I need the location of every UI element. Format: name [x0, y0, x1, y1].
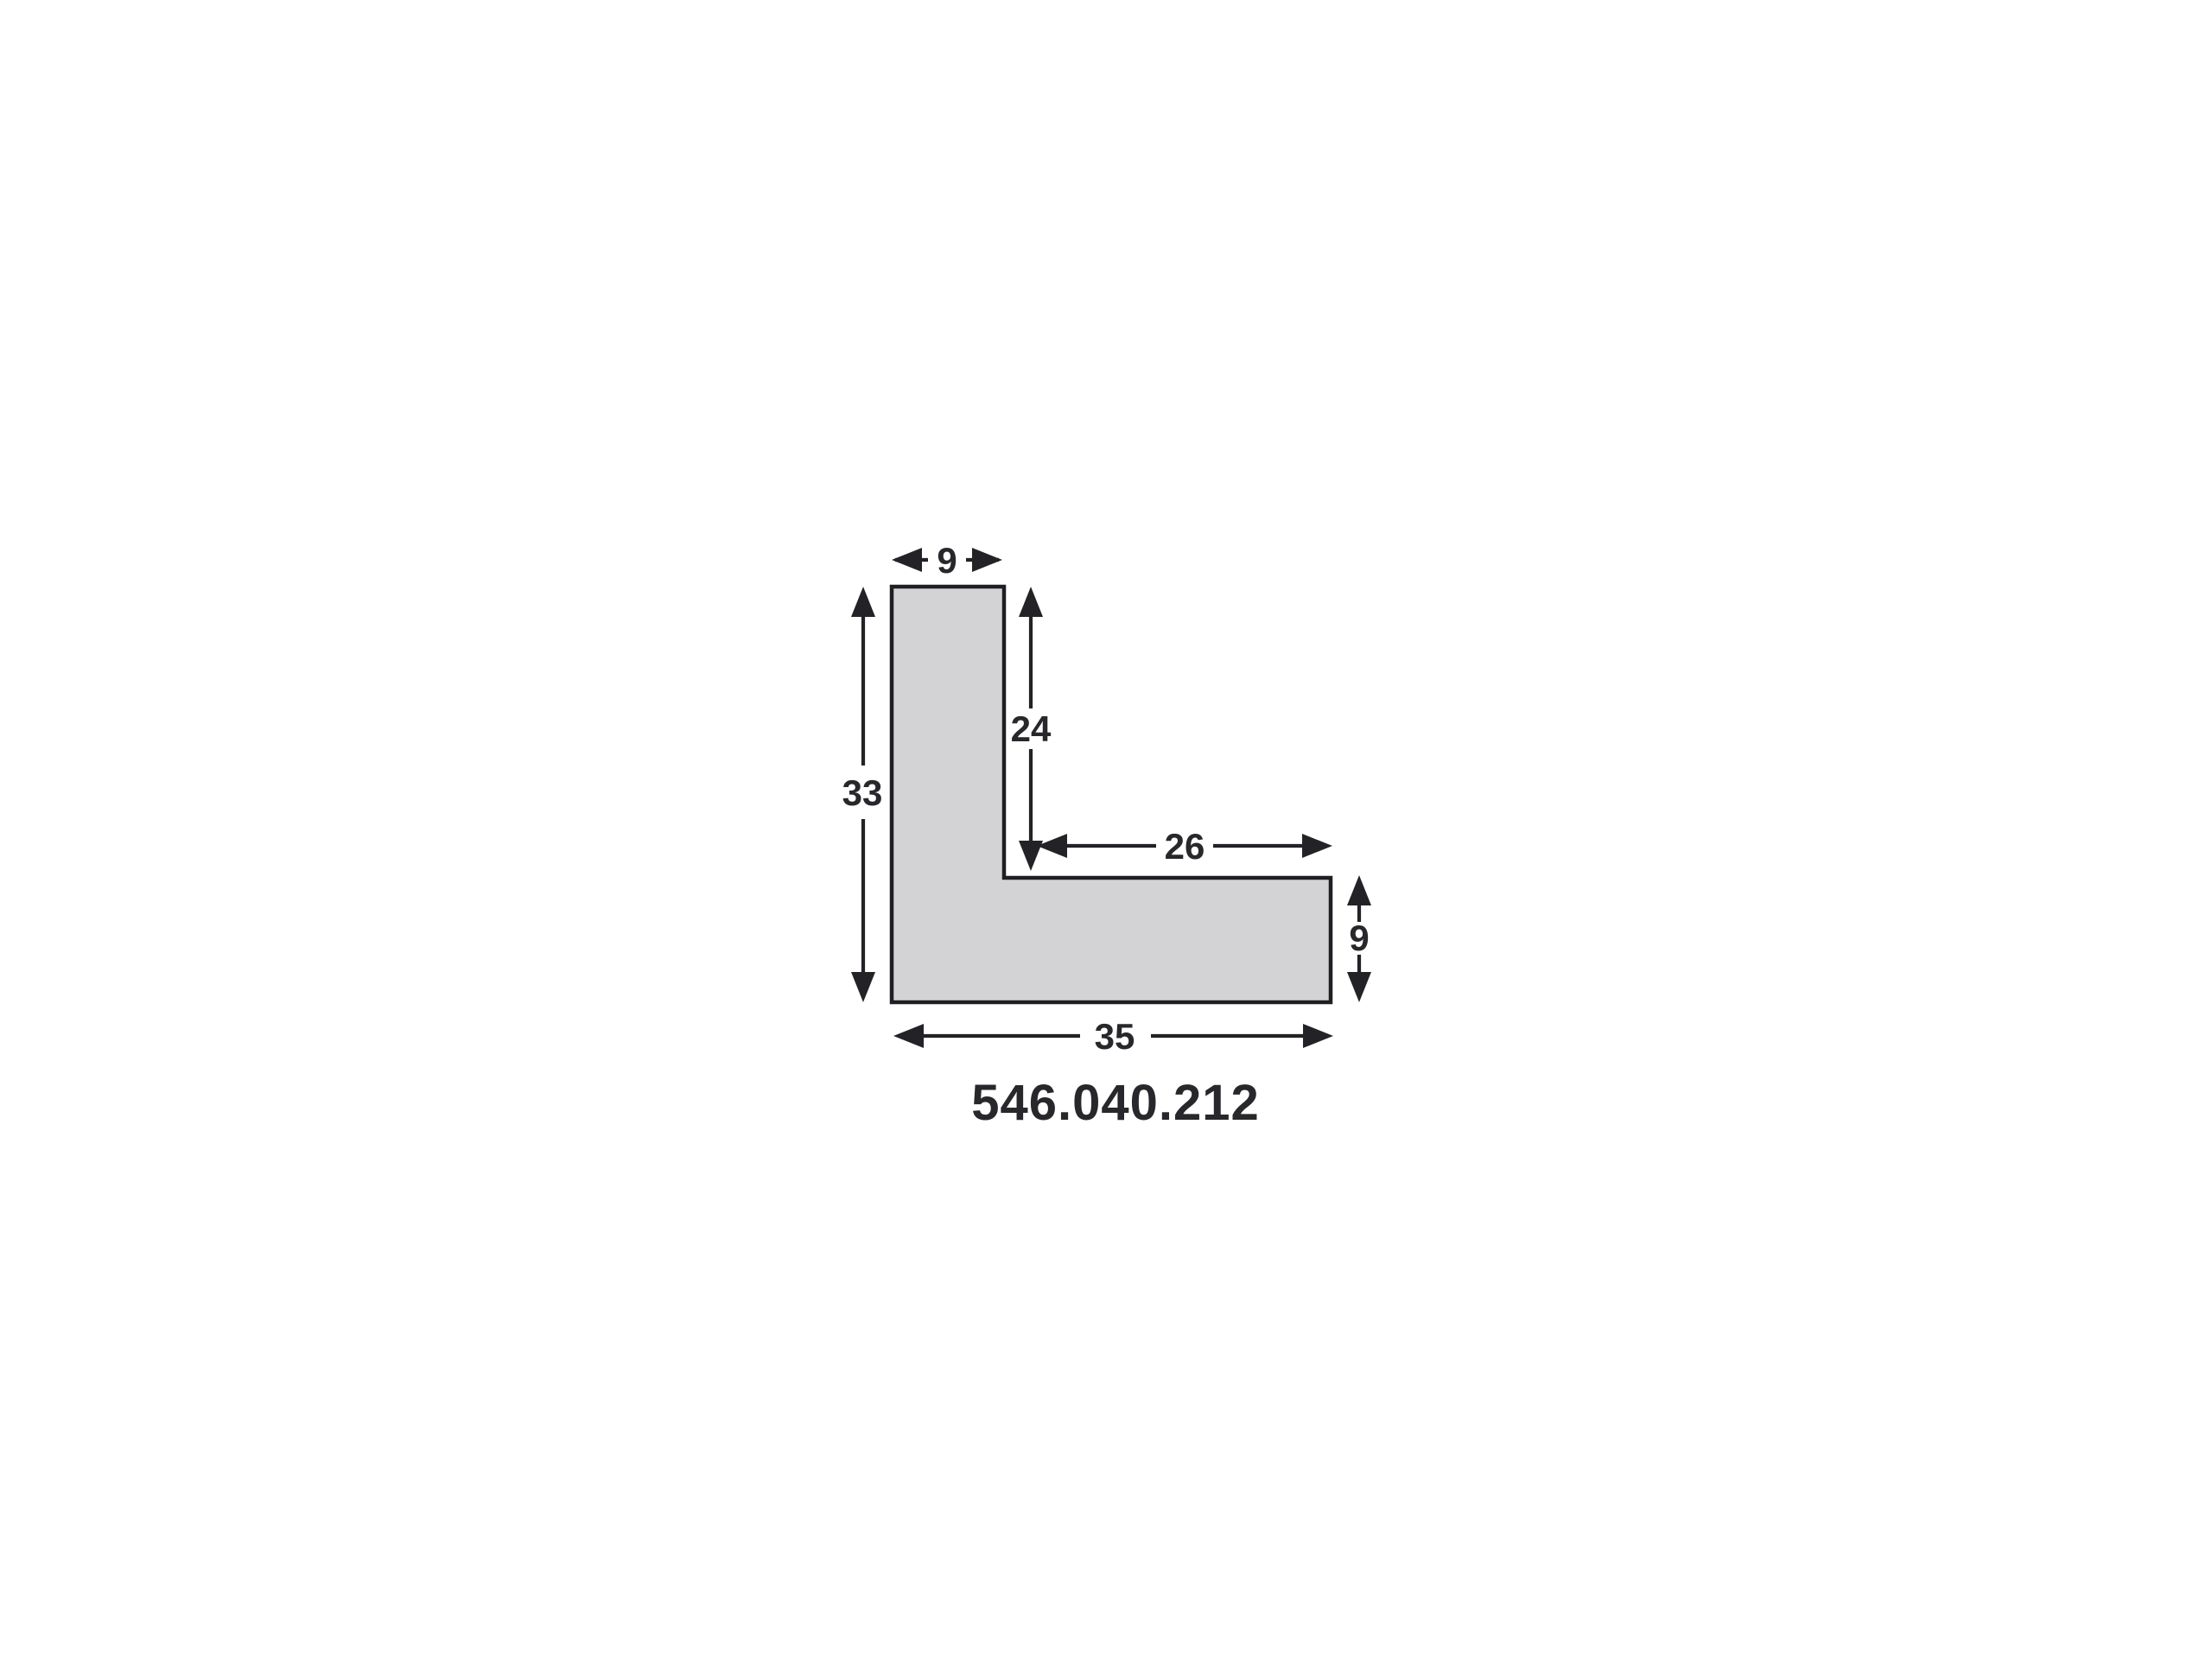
arrowhead-up-icon — [1347, 875, 1371, 905]
page: { "colors": { "background": "#ffffff", "… — [0, 0, 2212, 1658]
dim-left-height: 33 — [842, 587, 883, 1002]
arrowhead-down-icon — [851, 972, 875, 1002]
dim-right-height: 9 — [1347, 875, 1371, 1002]
arrowhead-right-icon — [1303, 1024, 1333, 1048]
dim-inner-height-label: 24 — [1011, 708, 1052, 749]
part-number: 546.040.212 — [971, 1075, 1260, 1131]
arrowhead-left-icon — [893, 1024, 924, 1048]
dim-top-width: 9 — [892, 540, 1002, 581]
dimension-diagram: 9 33 24 26 9 35 546.0 — [0, 0, 2212, 1658]
dim-right-height-label: 9 — [1349, 918, 1369, 958]
dim-bottom-width-label: 35 — [1095, 1016, 1135, 1057]
l-profile-shape — [892, 587, 1331, 1002]
dim-bottom-width: 35 — [893, 1016, 1333, 1057]
arrowhead-up-icon — [1019, 587, 1043, 617]
arrowhead-left-icon — [1037, 834, 1067, 858]
dim-top-width-label: 9 — [937, 540, 957, 581]
arrowhead-right-icon — [1302, 834, 1332, 858]
dim-inner-width: 26 — [1037, 826, 1332, 867]
dim-left-height-label: 33 — [842, 772, 883, 813]
arrowhead-up-icon — [851, 587, 875, 617]
dim-inner-height: 24 — [1011, 587, 1052, 871]
dim-inner-width-label: 26 — [1165, 826, 1205, 867]
arrowhead-down-icon — [1347, 972, 1371, 1002]
